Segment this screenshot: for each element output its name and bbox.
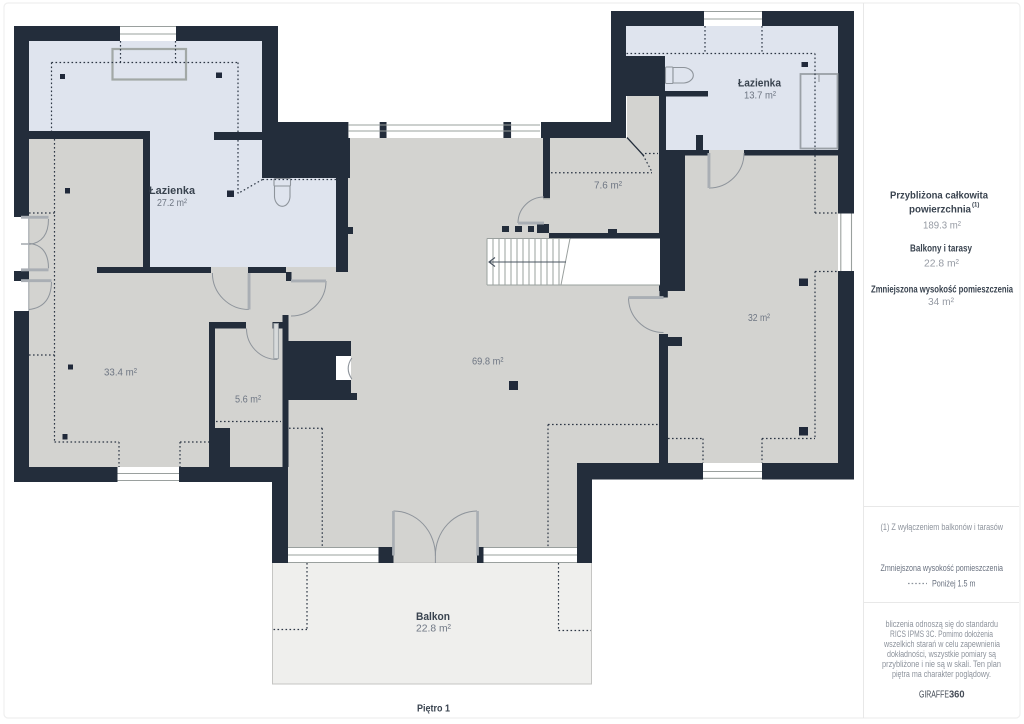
svg-text:wszelkich starań w celu zapewn: wszelkich starań w celu zapewnienia <box>883 639 1000 649</box>
svg-text:22.8 m²: 22.8 m² <box>924 258 959 270</box>
svg-text:32 m²: 32 m² <box>748 313 771 324</box>
svg-text:powierzchnia: powierzchnia <box>909 204 971 216</box>
svg-text:piętra ma charakter poglądowy.: piętra ma charakter poglądowy. <box>892 669 991 679</box>
svg-text:Poniżej 1.5 m: Poniżej 1.5 m <box>932 579 976 589</box>
svg-text:Zmniejszona wysokość pomieszcz: Zmniejszona wysokość pomieszczenia <box>871 285 1013 296</box>
svg-text:dokładności, wszystkie pomiary: dokładności, wszystkie pomiary są <box>887 649 996 659</box>
svg-text:RICS IPMS 3C. Pomimo dołożenia: RICS IPMS 3C. Pomimo dołożenia <box>890 629 993 639</box>
svg-text:Łazienka: Łazienka <box>149 185 196 197</box>
svg-text:Łazienka: Łazienka <box>738 78 782 90</box>
svg-text:Balkon: Balkon <box>416 611 450 623</box>
svg-text:7.6 m²: 7.6 m² <box>594 181 623 192</box>
svg-text:5.6 m²: 5.6 m² <box>235 395 262 406</box>
svg-text:GIRAFFE: GIRAFFE <box>919 690 949 701</box>
svg-text:69.8 m²: 69.8 m² <box>472 357 504 368</box>
svg-text:13.7 m²: 13.7 m² <box>744 91 777 102</box>
svg-text:33.4 m²: 33.4 m² <box>104 368 138 379</box>
svg-text:Zmniejszona wysokość pomieszcz: Zmniejszona wysokość pomieszczenia <box>881 563 1004 573</box>
svg-text:360: 360 <box>949 690 965 701</box>
svg-text:34 m²: 34 m² <box>928 296 954 308</box>
svg-text:Balkony i tarasy: Balkony i tarasy <box>910 244 972 255</box>
svg-text:Piętro 1: Piętro 1 <box>417 703 450 715</box>
svg-text:189.3 m²: 189.3 m² <box>923 220 961 232</box>
svg-text:22.8 m²: 22.8 m² <box>416 624 452 635</box>
svg-text:27.2 m²: 27.2 m² <box>157 198 188 209</box>
svg-text:Przybliżona całkowita: Przybliżona całkowita <box>890 190 988 202</box>
svg-text:przybliżone i nie są w skali.: przybliżone i nie są w skali. Ten plan <box>882 659 1001 669</box>
svg-text:bliczenia odnoszą się do stand: bliczenia odnoszą się do standardu <box>886 619 999 629</box>
svg-text:(1) Z wyłączeniem balkonów i t: (1) Z wyłączeniem balkonów i tarasów <box>881 522 1004 532</box>
svg-text:(1): (1) <box>972 203 979 209</box>
